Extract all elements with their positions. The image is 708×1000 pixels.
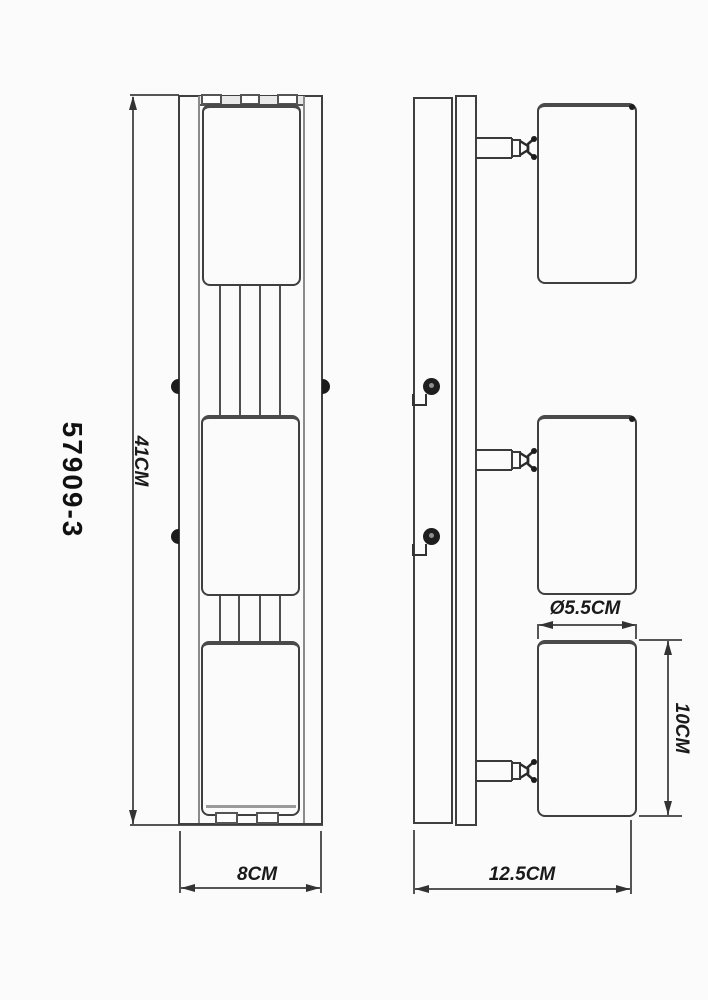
- spotlight-head-front-2: [201, 415, 300, 596]
- spotlight-head-front-3: [201, 641, 300, 816]
- width-ext-right: [320, 831, 322, 893]
- fixture-front-inner-right-line: [303, 96, 305, 823]
- depth-ext-right: [630, 820, 632, 894]
- height-ext-top: [130, 94, 179, 96]
- wall-plate: [413, 97, 453, 824]
- head-height-ext-bottom: [639, 815, 682, 817]
- depth-dim-line: [414, 888, 631, 890]
- technical-drawing: 57909-3 41CM: [0, 0, 708, 1000]
- screw-bracket: [412, 394, 427, 406]
- width-arrow-right: [306, 884, 320, 892]
- width-arrow-left: [181, 884, 195, 892]
- spotlight-arm-1: [476, 131, 540, 165]
- fixture-front-inner-left-line: [198, 96, 200, 823]
- spotlight-head-front-1: [202, 104, 301, 286]
- spotlight-head-side-1: [537, 103, 637, 284]
- head-corner-dot: [629, 416, 635, 422]
- head-height-ext-top: [639, 639, 682, 641]
- height-arrow-up: [129, 96, 137, 110]
- screw-bracket: [412, 544, 427, 556]
- head-height-arrow-up: [664, 641, 672, 655]
- depth-arrow-left: [415, 885, 429, 893]
- spotlight-arm-3: [476, 754, 540, 788]
- spotlight-arm-2: [476, 443, 540, 477]
- side-knob-bump: [171, 379, 179, 394]
- width-dim-line: [181, 887, 321, 889]
- diameter-arrow-left: [539, 621, 553, 629]
- screw-center: [429, 533, 434, 538]
- spotlight-head-side-2: [537, 415, 637, 595]
- width-dimension-label: 8CM: [237, 864, 277, 886]
- height-dimension-label: 41CM: [129, 436, 151, 487]
- head-height-label: 10CM: [670, 703, 692, 754]
- head-height-dim-line: [667, 641, 669, 815]
- side-knob-bump: [322, 379, 330, 394]
- depth-dimension-label: 12.5CM: [489, 864, 556, 886]
- side-knob-bump: [171, 529, 179, 544]
- diameter-arrow-right: [622, 621, 636, 629]
- front-bottom-notch: [215, 812, 238, 824]
- depth-arrow-right: [616, 885, 630, 893]
- screw-center: [429, 383, 434, 388]
- head-corner-dot: [629, 104, 635, 110]
- spotlight-head-side-3: [537, 640, 637, 817]
- head-height-arrow-down: [664, 801, 672, 815]
- height-arrow-down: [129, 810, 137, 824]
- model-number-label: 57909-3: [56, 422, 88, 539]
- front-bottom-notch: [256, 812, 279, 824]
- mounting-bar: [455, 95, 477, 826]
- head-diameter-label: Ø5.5CM: [550, 598, 621, 620]
- spotlight-head-rim-line: [206, 805, 296, 808]
